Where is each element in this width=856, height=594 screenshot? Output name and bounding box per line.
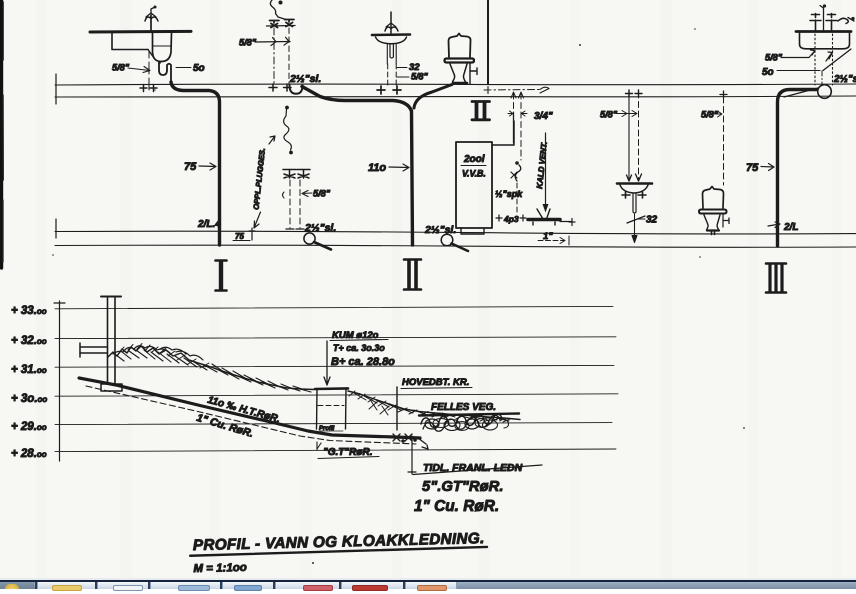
- svg-text:4p3: 4p3: [503, 214, 519, 224]
- svg-text:5o: 5o: [762, 67, 774, 78]
- svg-text:M = 1:1oo: M = 1:1oo: [193, 562, 247, 575]
- svg-text:"G.T"RøR.: "G.T"RøR.: [323, 447, 372, 458]
- svg-text:+ 31.oo: + 31.oo: [11, 364, 47, 376]
- svg-text:1": 1": [543, 231, 553, 242]
- svg-text:1" Cu. RøR.: 1" Cu. RøR.: [414, 498, 499, 515]
- svg-text:5".GT"RøR.: 5".GT"RøR.: [422, 479, 503, 495]
- svg-text:+ 3o.oo: + 3o.oo: [11, 393, 47, 405]
- svg-text:5/8": 5/8": [765, 53, 783, 63]
- svg-text:2½"sl.: 2½"sl.: [424, 224, 456, 236]
- svg-text:½"spk: ½"spk: [495, 189, 523, 199]
- svg-text:V.V.B.: V.V.B.: [462, 169, 486, 179]
- svg-text:5/8": 5/8": [313, 189, 331, 199]
- svg-text:3/4": 3/4": [534, 111, 553, 122]
- svg-text:+ 28.oo: + 28.oo: [11, 448, 47, 460]
- svg-text:2/L.4: 2/L.4: [197, 219, 221, 230]
- svg-text:32: 32: [646, 215, 658, 226]
- svg-text:+ 29.oo: + 29.oo: [11, 421, 47, 433]
- svg-text:11o: 11o: [368, 162, 386, 174]
- svg-text:2½"sl.: 2½"sl.: [833, 74, 856, 85]
- svg-text:2½"sl.: 2½"sl.: [289, 73, 321, 85]
- svg-text:5/8": 5/8": [600, 110, 618, 120]
- svg-text:+ 32.oo: + 32.oo: [11, 335, 47, 347]
- svg-text:75: 75: [235, 232, 244, 241]
- svg-text:T+ ca. 3o.3o: T+ ca. 3o.3o: [333, 343, 385, 353]
- svg-text:B+ ca. 28.8o: B+ ca. 28.8o: [331, 356, 395, 368]
- svg-text:HOVEDBT. KR.: HOVEDBT. KR.: [402, 377, 469, 388]
- svg-text:5/8": 5/8": [411, 72, 429, 82]
- svg-text:5/8": 5/8": [112, 63, 130, 73]
- svg-text:+ 33.oo: + 33.oo: [11, 305, 47, 317]
- svg-text:75: 75: [184, 161, 197, 173]
- svg-text:2/L: 2/L: [783, 222, 798, 233]
- svg-text:FELLES VEG.: FELLES VEG.: [431, 402, 496, 413]
- svg-text:2ool: 2ool: [463, 154, 485, 165]
- svg-text:5/8": 5/8": [239, 38, 257, 48]
- svg-text:75: 75: [746, 162, 759, 174]
- svg-text:5o: 5o: [193, 63, 205, 74]
